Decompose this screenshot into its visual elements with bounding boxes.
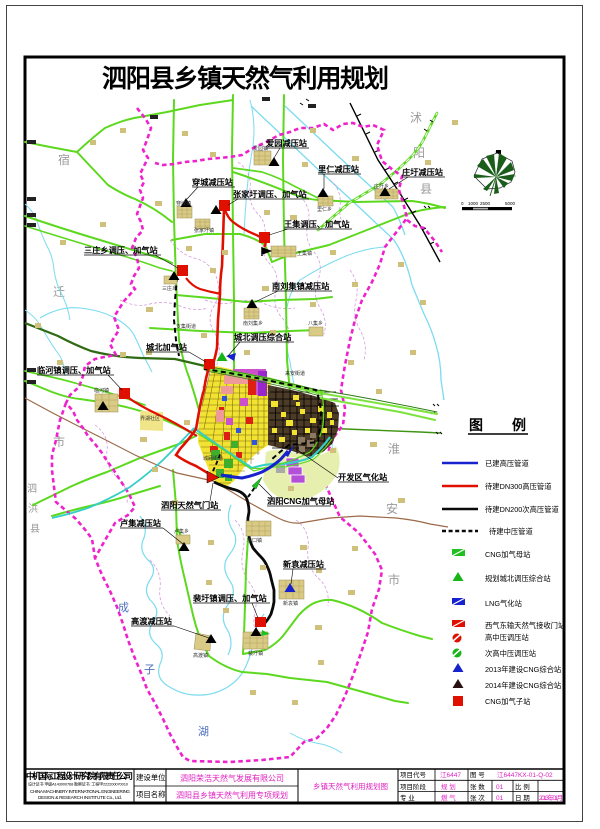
svg-text:CNG加气母站: CNG加气母站 [485,550,530,559]
svg-text:CNG加气子站: CNG加气子站 [485,697,530,706]
svg-text:新袁减压站: 新袁减压站 [283,559,325,569]
svg-text:日 期: 日 期 [515,794,530,802]
svg-text:三庄乡调压、加气站: 三庄乡调压、加气站 [84,245,159,255]
svg-text:界湖社区: 界湖社区 [140,415,160,422]
svg-text:来安街道: 来安街道 [285,370,305,377]
svg-text:泗阳荣浩天然气发展有限公司: 泗阳荣浩天然气发展有限公司 [180,773,284,783]
svg-text:规 划: 规 划 [441,782,456,791]
svg-text:湖: 湖 [198,725,209,738]
svg-text:2013年01月: 2013年01月 [539,793,563,802]
svg-text:里仁减压站: 里仁减压站 [318,164,360,174]
svg-text:县: 县 [30,523,40,535]
svg-text:王集镇: 王集镇 [297,250,312,257]
svg-text:项目名称: 项目名称 [136,790,166,799]
svg-text:项目代号: 项目代号 [400,770,427,779]
svg-text:泗: 泗 [27,483,37,495]
svg-text:泗阳天然气门站: 泗阳天然气门站 [161,500,219,510]
svg-text:张家圩镇: 张家圩镇 [194,227,214,234]
svg-text:南刘集乡: 南刘集乡 [243,320,263,327]
svg-text:2500: 2500 [480,201,491,206]
svg-text:高渡镇: 高渡镇 [193,652,208,659]
svg-text:已建高压管道: 已建高压管道 [485,459,529,468]
svg-text:待建DN300高压管道: 待建DN300高压管道 [485,482,552,491]
svg-text:八集乡: 八集乡 [308,320,323,327]
svg-text:安: 安 [386,501,398,516]
svg-text:2014年建设CNG综合站: 2014年建设CNG综合站 [485,681,561,690]
svg-text:庄圩减压站: 庄圩减压站 [402,167,444,177]
svg-text:临河镇调压、加气站: 临河镇调压、加气站 [37,365,112,375]
svg-text:1000: 1000 [468,201,479,206]
svg-text:城北调压综合站: 城北调压综合站 [234,332,292,342]
svg-text:张 次: 张 次 [470,793,485,802]
svg-text:次高中压调压站: 次高中压调压站 [485,649,536,658]
svg-text:江6447: 江6447 [440,771,461,779]
svg-text:南刘集镇减压站: 南刘集镇减压站 [272,281,330,291]
svg-text:子: 子 [144,663,155,676]
svg-text:泗阳县乡镇天然气利用规划: 泗阳县乡镇天然气利用规划 [102,64,389,93]
svg-text:庄圩乡: 庄圩乡 [374,183,389,190]
svg-text:三庄乡: 三庄乡 [162,285,177,292]
svg-text:图: 图 [469,417,483,433]
svg-text:卢集乡: 卢集乡 [174,528,189,535]
svg-text:泗阳CNG加气母站: 泗阳CNG加气母站 [267,496,335,506]
svg-text:高中压调压站: 高中压调压站 [485,633,529,642]
svg-text:项目阶段: 项目阶段 [400,782,427,791]
svg-text:LNG气化站: LNG气化站 [485,599,522,608]
svg-text:开发区气化站: 开发区气化站 [338,472,388,482]
svg-text:专 业: 专 业 [400,793,415,802]
svg-text:中机国际工程设计研究院有限责任公司: 中机国际工程设计研究院有限责任公司 [26,770,133,781]
svg-text:城厢街道: 城厢街道 [203,455,223,462]
svg-text:卢集减压站: 卢集减压站 [120,518,162,528]
svg-text:新袁镇: 新袁镇 [283,600,298,607]
svg-text:高渡减压站: 高渡减压站 [131,616,173,626]
svg-text:爱园减压站: 爱园减压站 [266,138,308,148]
svg-text:西气东输天然气接收门站: 西气东输天然气接收门站 [485,621,565,630]
svg-text:裴圩镇调压、加气站: 裴圩镇调压、加气站 [192,593,268,603]
svg-text:穿城镇: 穿城镇 [176,200,191,207]
svg-text:县: 县 [420,182,432,196]
svg-text:待建中压管道: 待建中压管道 [489,527,533,536]
svg-text:沭: 沭 [410,111,422,125]
svg-text:DESIGN & RESEARCH INSTITUTE Co: DESIGN & RESEARCH INSTITUTE Co., Ltd. [38,795,122,800]
svg-text:爱园镇: 爱园镇 [253,145,268,152]
svg-text:燃 气: 燃 气 [441,793,456,802]
svg-text:临河镇: 临河镇 [94,387,109,394]
svg-text:01: 01 [496,795,504,802]
svg-text:王集调压、加气站: 王集调压、加气站 [284,219,350,229]
svg-text:设计证书 甲级A143000768 勘察证书: 工程甲22: 设计证书 甲级A143000768 勘察证书: 工程甲222200070010 [28,781,129,787]
svg-text:张 数: 张 数 [470,782,485,791]
svg-text:穿城减压站: 穿城减压站 [192,177,234,187]
svg-text:CHINA MACHINERY INTERNATIONAL: CHINA MACHINERY INTERNATIONAL ENGINEERIN… [30,789,130,794]
svg-text:宿: 宿 [58,152,70,167]
svg-text:图 号: 图 号 [470,771,485,779]
svg-text:建设单位: 建设单位 [136,773,166,782]
svg-text:比 例: 比 例 [515,782,530,791]
svg-text:裴圩镇: 裴圩镇 [248,650,263,657]
svg-text:待建DN200次高压管道: 待建DN200次高压管道 [485,505,559,514]
svg-text:01: 01 [496,784,504,791]
svg-text:乡镇天然气利用规划图: 乡镇天然气利用规划图 [313,781,388,791]
svg-text:江6447KX-01-Q-02: 江6447KX-01-Q-02 [497,771,553,779]
svg-text:泗阳县乡镇天然气利用专项规划: 泗阳县乡镇天然气利用专项规划 [176,790,288,800]
svg-text:城北加气站: 城北加气站 [146,342,188,352]
svg-text:李口镇: 李口镇 [247,537,262,544]
svg-text:2013年建设CNG综合站: 2013年建设CNG综合站 [485,665,561,674]
svg-text:里仁乡: 里仁乡 [317,206,332,213]
svg-text:市: 市 [388,572,400,587]
svg-text:规划城北调压综合站: 规划城北调压综合站 [485,574,551,583]
svg-text:5000: 5000 [505,201,516,206]
svg-text:支集街道: 支集街道 [176,323,196,330]
svg-text:张家圩调压、加气站: 张家圩调压、加气站 [233,189,308,199]
svg-text:淮: 淮 [388,442,400,456]
svg-text:例: 例 [512,417,526,433]
